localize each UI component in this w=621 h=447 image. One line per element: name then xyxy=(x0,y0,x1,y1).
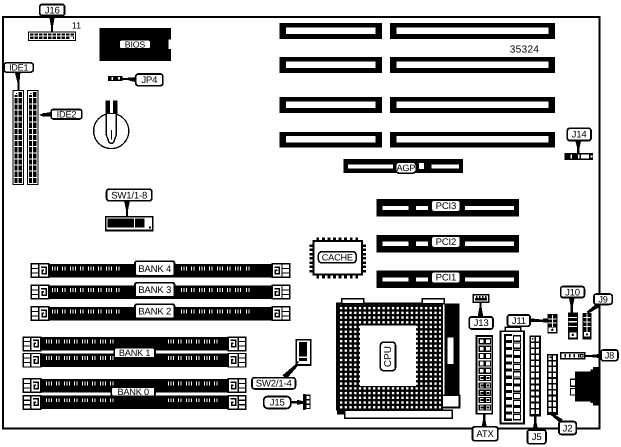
svg-text:JP4: JP4 xyxy=(141,75,158,86)
svg-text:ATX: ATX xyxy=(476,429,494,440)
svg-text:PCI1: PCI1 xyxy=(436,273,457,284)
svg-text:11: 11 xyxy=(72,21,81,31)
svg-text:J10: J10 xyxy=(565,287,580,298)
svg-text:BANK 4: BANK 4 xyxy=(138,264,172,275)
svg-text:IDE1: IDE1 xyxy=(9,63,28,73)
svg-text:SW2/1-4: SW2/1-4 xyxy=(256,379,293,390)
svg-text:CACHE: CACHE xyxy=(322,252,353,262)
svg-text:PCI2: PCI2 xyxy=(436,237,457,248)
svg-text:SW1/1-8: SW1/1-8 xyxy=(111,190,147,201)
svg-text:BANK 0: BANK 0 xyxy=(117,387,149,397)
svg-text:J9: J9 xyxy=(598,294,607,304)
svg-text:J15: J15 xyxy=(270,398,285,409)
svg-text:IDE2: IDE2 xyxy=(57,109,77,119)
svg-text:CPU: CPU xyxy=(383,346,394,367)
svg-text:AGP: AGP xyxy=(396,163,415,173)
svg-text:J14: J14 xyxy=(572,130,588,141)
svg-text:J2: J2 xyxy=(563,423,573,434)
svg-text:BANK 2: BANK 2 xyxy=(138,307,171,318)
svg-text:BIOS: BIOS xyxy=(125,39,146,49)
svg-text:J11: J11 xyxy=(512,316,526,327)
svg-text:J5: J5 xyxy=(532,432,542,443)
svg-text:35324: 35324 xyxy=(510,45,539,56)
svg-text:BANK 3: BANK 3 xyxy=(138,285,171,296)
svg-text:J13: J13 xyxy=(474,318,489,329)
svg-text:BANK 1: BANK 1 xyxy=(119,348,151,358)
svg-text:J16: J16 xyxy=(45,5,60,16)
svg-text:PCI3: PCI3 xyxy=(436,201,457,212)
svg-text:J8: J8 xyxy=(605,350,614,360)
